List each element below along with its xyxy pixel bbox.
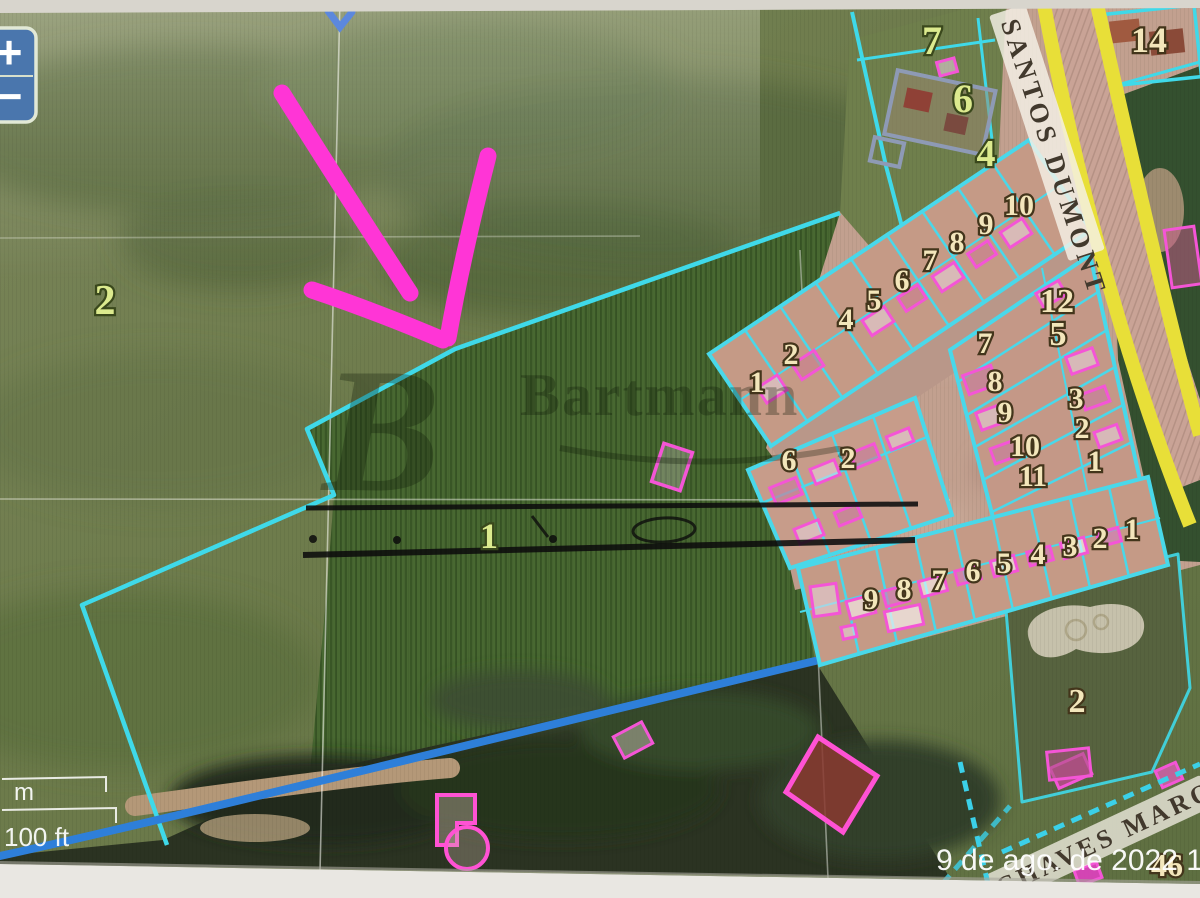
parcel-number-label: 2: [95, 278, 116, 324]
lot-number-label: 7: [978, 327, 993, 360]
lot-number-label: 10: [1010, 430, 1040, 463]
lot-number-label: 2: [841, 442, 856, 475]
parcel-number-label: 4: [977, 133, 996, 175]
lot-number-label: 12: [1040, 283, 1074, 320]
map-canvas: SANTOS DUMONT CHAVES MARQU B Bartmann: [0, 0, 1200, 898]
lot-number-label: 1: [750, 366, 765, 399]
lot-number-label: 6: [895, 264, 910, 297]
parcel-number-label: 1: [480, 516, 498, 556]
lot-number-label: 5: [997, 547, 1012, 580]
lot-number-label: 9: [979, 208, 994, 241]
parcel-number-label: 7: [922, 18, 942, 63]
lot-number-label: 4: [1031, 538, 1046, 571]
lot-number-label: 9: [998, 396, 1013, 429]
lot-number-label: 11: [1019, 460, 1047, 493]
map-viewport[interactable]: SANTOS DUMONT CHAVES MARQU B Bartmann: [0, 0, 1200, 898]
lot-number-label: 1: [1125, 513, 1140, 546]
lot-number-label: 2: [1069, 683, 1086, 720]
lot-number-label: 2: [1093, 522, 1108, 555]
lot-number-label: 5: [1050, 316, 1067, 353]
zoom-control: + −: [0, 26, 36, 122]
lot-number-label: 6: [782, 444, 797, 477]
lot-number-label: 5: [867, 284, 882, 317]
lot-number-label: 3: [1069, 382, 1084, 415]
screen-photo: SANTOS DUMONT CHAVES MARQU B Bartmann: [0, 0, 1200, 898]
round-structure: [446, 827, 488, 869]
lot-number-label: 7: [932, 564, 947, 597]
lot-number-label: 2: [1075, 412, 1090, 445]
lot-number-label: 14: [1131, 20, 1167, 60]
lot-number-label: 8: [988, 365, 1003, 398]
lot-number-label: 6: [966, 555, 981, 588]
scale-metric-label: m: [14, 779, 34, 806]
timestamp-text: 9 de ago. de 2022 11:1: [936, 844, 1200, 877]
lot-number-label: 3: [1063, 530, 1078, 563]
watermark-logo: B: [320, 331, 441, 529]
lot-number-label: 7: [923, 244, 938, 277]
minus-icon: −: [0, 70, 22, 122]
scale-imperial-label: 100 ft: [4, 822, 70, 852]
lot-number-label: 8: [897, 573, 912, 606]
lot-number-label: 4: [839, 303, 854, 336]
lot-number-label: 9: [864, 583, 879, 616]
parcel-number-label: 6: [953, 76, 973, 121]
lot-number-label: 2: [784, 338, 799, 371]
lot-number-label: 10: [1004, 189, 1034, 222]
lot-number-label: 8: [950, 226, 965, 259]
lot-number-label: 1: [1088, 445, 1103, 478]
